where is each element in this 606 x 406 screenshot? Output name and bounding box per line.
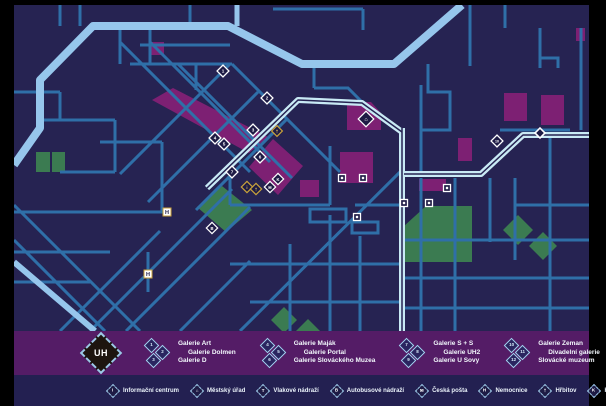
train-station-icon: T: [256, 383, 270, 397]
svg-text:1: 1: [222, 69, 225, 74]
map-square-marker: [360, 175, 367, 182]
amenity-label: Nemocnice: [495, 388, 527, 394]
amenity-item: HNemocnice: [480, 386, 527, 396]
gallery-name: Galerie UH2: [433, 349, 480, 358]
svg-text:4: 4: [214, 136, 217, 141]
svg-text:✉: ✉: [268, 185, 272, 190]
svg-text:H: H: [146, 272, 150, 278]
svg-text:5: 5: [223, 142, 226, 147]
hospital-icon: H: [478, 383, 492, 397]
info-icon: i: [106, 383, 120, 397]
map-square-marker: [339, 175, 346, 182]
bus-station-icon: B: [330, 383, 344, 397]
gallery-names: Galerie S + SGalerie UH2Galerie U Sovy: [433, 340, 480, 366]
gallery-name: Galerie S + S: [433, 340, 480, 349]
amenity-label: Autobusové nádraží: [347, 388, 404, 394]
city-map: 123456710i†✉K⌂B†HH: [14, 5, 589, 331]
svg-text:K: K: [276, 177, 279, 182]
amenity-item: KKino: [589, 386, 606, 396]
uh-logo: UH: [80, 332, 122, 374]
gallery-name: Galerie U Sovy: [433, 357, 480, 366]
amenity-item: TVlakové nádraží: [258, 386, 318, 396]
svg-text:H: H: [165, 210, 169, 216]
gallery-name: Galerie Zeman: [538, 340, 600, 349]
svg-text:6: 6: [259, 155, 262, 160]
gallery-name: Galerie Art: [178, 340, 236, 349]
legend-band: UH 123Galerie ArtGalerie DolmenGalerie D…: [14, 331, 589, 375]
streets-layer: [14, 5, 589, 331]
river-route-layer: [207, 100, 589, 331]
gallery-names: Galerie ZemanDivadelní galerieSlovácké m…: [538, 340, 600, 366]
gallery-number-cluster: 123: [146, 339, 171, 367]
uh-logo-text: UH: [94, 348, 108, 358]
map-square-marker: [354, 214, 361, 221]
amenity-item: BAutobusové nádraží: [332, 386, 404, 396]
legend-group-2: 456Galerie MajákGalerie PortalGalerie Sl…: [262, 339, 376, 367]
gallery-number-cluster: 101112: [506, 339, 531, 367]
gallery-name: Divadelní galerie: [538, 349, 600, 358]
amenity-legend-band: iInformační centrum⌂Městský úřadTVlakové…: [14, 375, 589, 406]
gallery-number-cluster: 789: [401, 339, 426, 367]
svg-text:7: 7: [231, 170, 234, 175]
svg-text:3: 3: [252, 128, 255, 133]
amenity-label: Vlakové nádraží: [273, 388, 318, 394]
amenity-label: Hřbitov: [555, 388, 576, 394]
town-hall-icon: ⌂: [190, 383, 204, 397]
svg-text:2: 2: [266, 96, 269, 101]
amenity-item: ⌂Městský úřad: [192, 386, 245, 396]
gallery-names: Galerie MajákGalerie PortalGalerie Slová…: [294, 340, 376, 366]
amenity-label: Informační centrum: [123, 388, 179, 394]
gallery-legend-groups: 123Galerie ArtGalerie DolmenGalerie D456…: [146, 339, 600, 367]
svg-text:B: B: [210, 226, 213, 231]
gallery-names: Galerie ArtGalerie DolmenGalerie D: [178, 340, 236, 366]
post-office-icon: ✉: [415, 383, 429, 397]
cinema-icon: K: [587, 383, 601, 397]
map-square-marker: [401, 200, 408, 207]
gallery-name: Galerie Slováckého Muzea: [294, 357, 376, 366]
map-poster: 123456710i†✉K⌂B†HH UH 123Galerie ArtGale…: [0, 0, 606, 406]
amenity-label: Česká pošta: [432, 388, 467, 394]
gallery-name: Galerie Portal: [294, 349, 376, 358]
map-square-marker: [444, 185, 451, 192]
legend-group-1: 123Galerie ArtGalerie DolmenGalerie D: [146, 339, 236, 367]
amenity-item: †Hřbitov: [540, 386, 576, 396]
map-square-marker: [426, 200, 433, 207]
legend-group-3: 789Galerie S + SGalerie UH2Galerie U Sov…: [401, 339, 480, 367]
gallery-number-cluster: 456: [262, 339, 287, 367]
legend-group-4: 101112Galerie ZemanDivadelní galerieSlov…: [506, 339, 600, 367]
city-map-svg: 123456710i†✉K⌂B†HH: [14, 5, 589, 331]
svg-text:⌂: ⌂: [364, 117, 367, 123]
gallery-name: Galerie Dolmen: [178, 349, 236, 358]
svg-text:i: i: [246, 185, 247, 190]
gallery-name: Galerie D: [178, 357, 236, 366]
amenity-item: iInformační centrum: [108, 386, 179, 396]
gallery-name: Galerie Maják: [294, 340, 376, 349]
amenity-item: ✉Česká pošta: [417, 386, 467, 396]
cemetery-icon: †: [538, 383, 552, 397]
amenity-label: Městský úřad: [207, 388, 245, 394]
gallery-name: Slovácké muzeum: [538, 357, 600, 366]
svg-text:10: 10: [495, 140, 499, 144]
